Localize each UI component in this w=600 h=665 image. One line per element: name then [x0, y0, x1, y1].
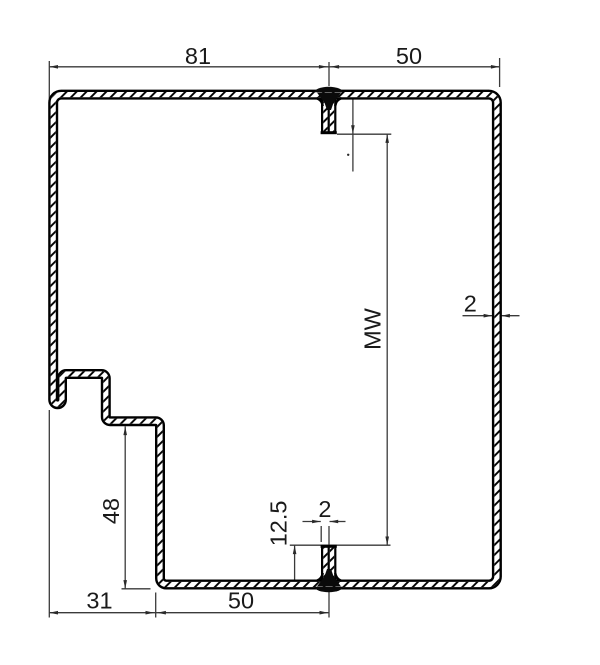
svg-text:MW: MW — [359, 307, 385, 350]
svg-text:81: 81 — [185, 43, 211, 69]
svg-text:50: 50 — [228, 587, 254, 613]
svg-text:12.5: 12.5 — [265, 501, 291, 547]
svg-text:50: 50 — [396, 43, 422, 69]
svg-text:2: 2 — [464, 291, 477, 317]
svg-text:48: 48 — [98, 498, 124, 524]
svg-text:2: 2 — [318, 496, 331, 522]
svg-text:31: 31 — [86, 587, 112, 613]
